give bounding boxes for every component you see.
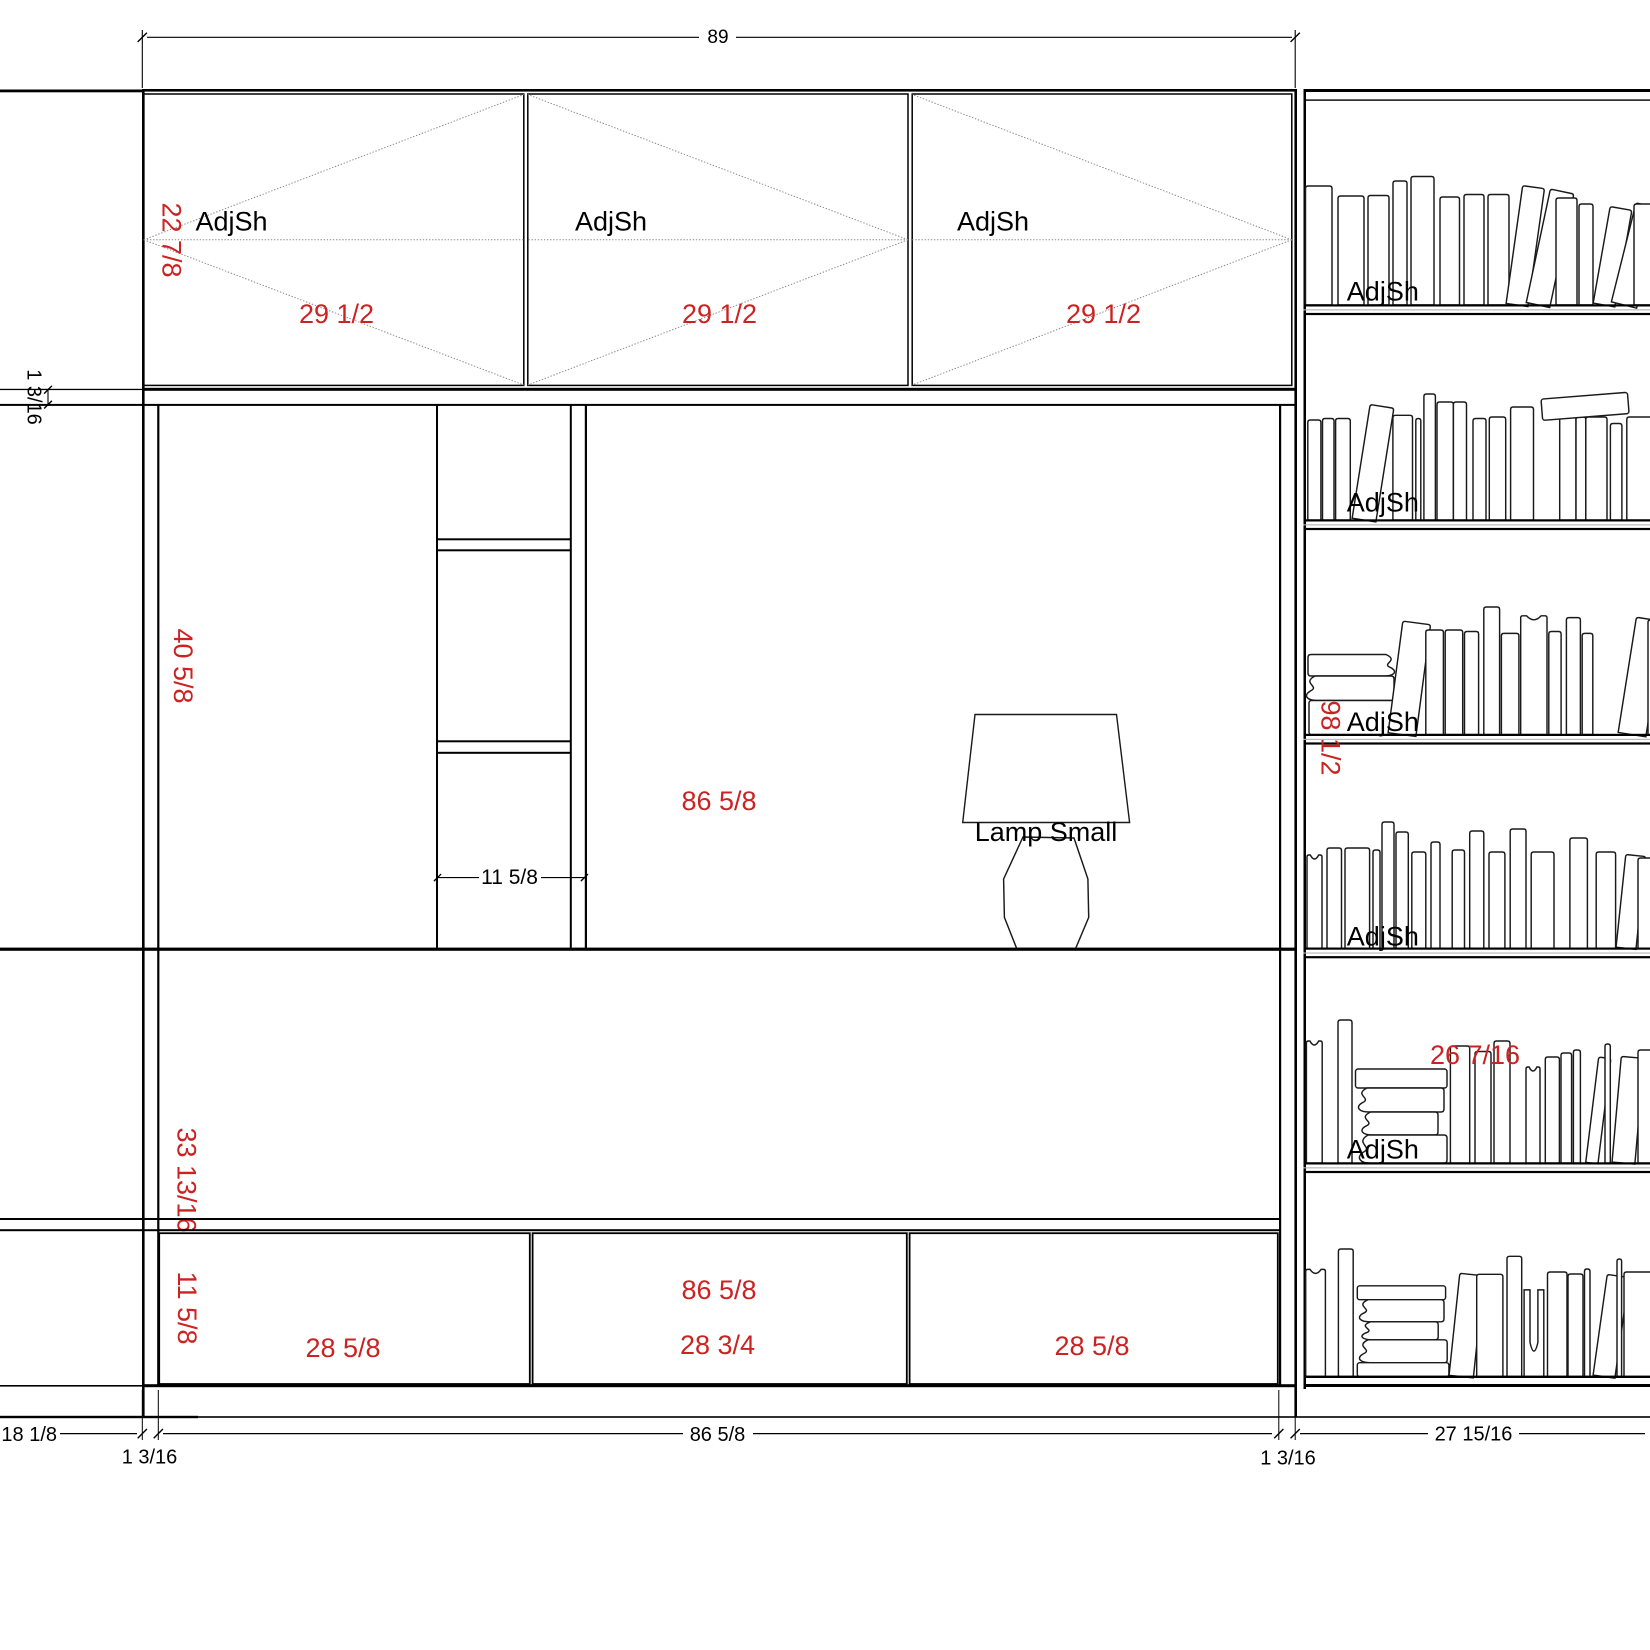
svg-text:86 5/8: 86 5/8	[690, 1424, 746, 1446]
svg-text:AdjSh: AdjSh	[1347, 921, 1419, 951]
svg-text:AdjSh: AdjSh	[1347, 488, 1419, 518]
svg-text:AdjSh: AdjSh	[1347, 707, 1419, 737]
svg-text:18 1/8: 18 1/8	[1, 1424, 57, 1446]
svg-text:86 5/8: 86 5/8	[681, 1275, 756, 1305]
svg-text:Lamp Small: Lamp Small	[975, 817, 1118, 847]
svg-text:11 5/8: 11 5/8	[172, 1271, 202, 1344]
svg-text:AdjSh: AdjSh	[575, 207, 647, 237]
svg-text:1 3/16: 1 3/16	[23, 369, 45, 425]
svg-text:28 3/4: 28 3/4	[680, 1330, 755, 1360]
svg-text:28 5/8: 28 5/8	[1054, 1331, 1129, 1361]
svg-text:33 13/16: 33 13/16	[172, 1127, 202, 1232]
svg-text:29 1/2: 29 1/2	[682, 299, 757, 329]
svg-text:40 5/8: 40 5/8	[168, 628, 198, 703]
svg-text:29 1/2: 29 1/2	[299, 299, 374, 329]
svg-text:28 5/8: 28 5/8	[305, 1333, 380, 1363]
svg-text:AdjSh: AdjSh	[1347, 276, 1419, 306]
svg-text:1 3/16: 1 3/16	[122, 1447, 178, 1469]
svg-text:11 5/8: 11 5/8	[481, 866, 538, 889]
svg-text:27 15/16: 27 15/16	[1435, 1424, 1513, 1446]
svg-text:98 1/2: 98 1/2	[1316, 700, 1346, 775]
svg-text:AdjSh: AdjSh	[957, 207, 1029, 237]
svg-text:26 7/16: 26 7/16	[1430, 1040, 1520, 1070]
svg-text:22 7/8: 22 7/8	[157, 202, 187, 277]
svg-text:AdjSh: AdjSh	[1347, 1135, 1419, 1165]
svg-text:29 1/2: 29 1/2	[1066, 299, 1141, 329]
svg-text:89: 89	[707, 27, 728, 48]
svg-text:AdjSh: AdjSh	[196, 207, 268, 237]
svg-text:1 3/16: 1 3/16	[1260, 1448, 1316, 1470]
svg-text:86 5/8: 86 5/8	[681, 786, 756, 816]
